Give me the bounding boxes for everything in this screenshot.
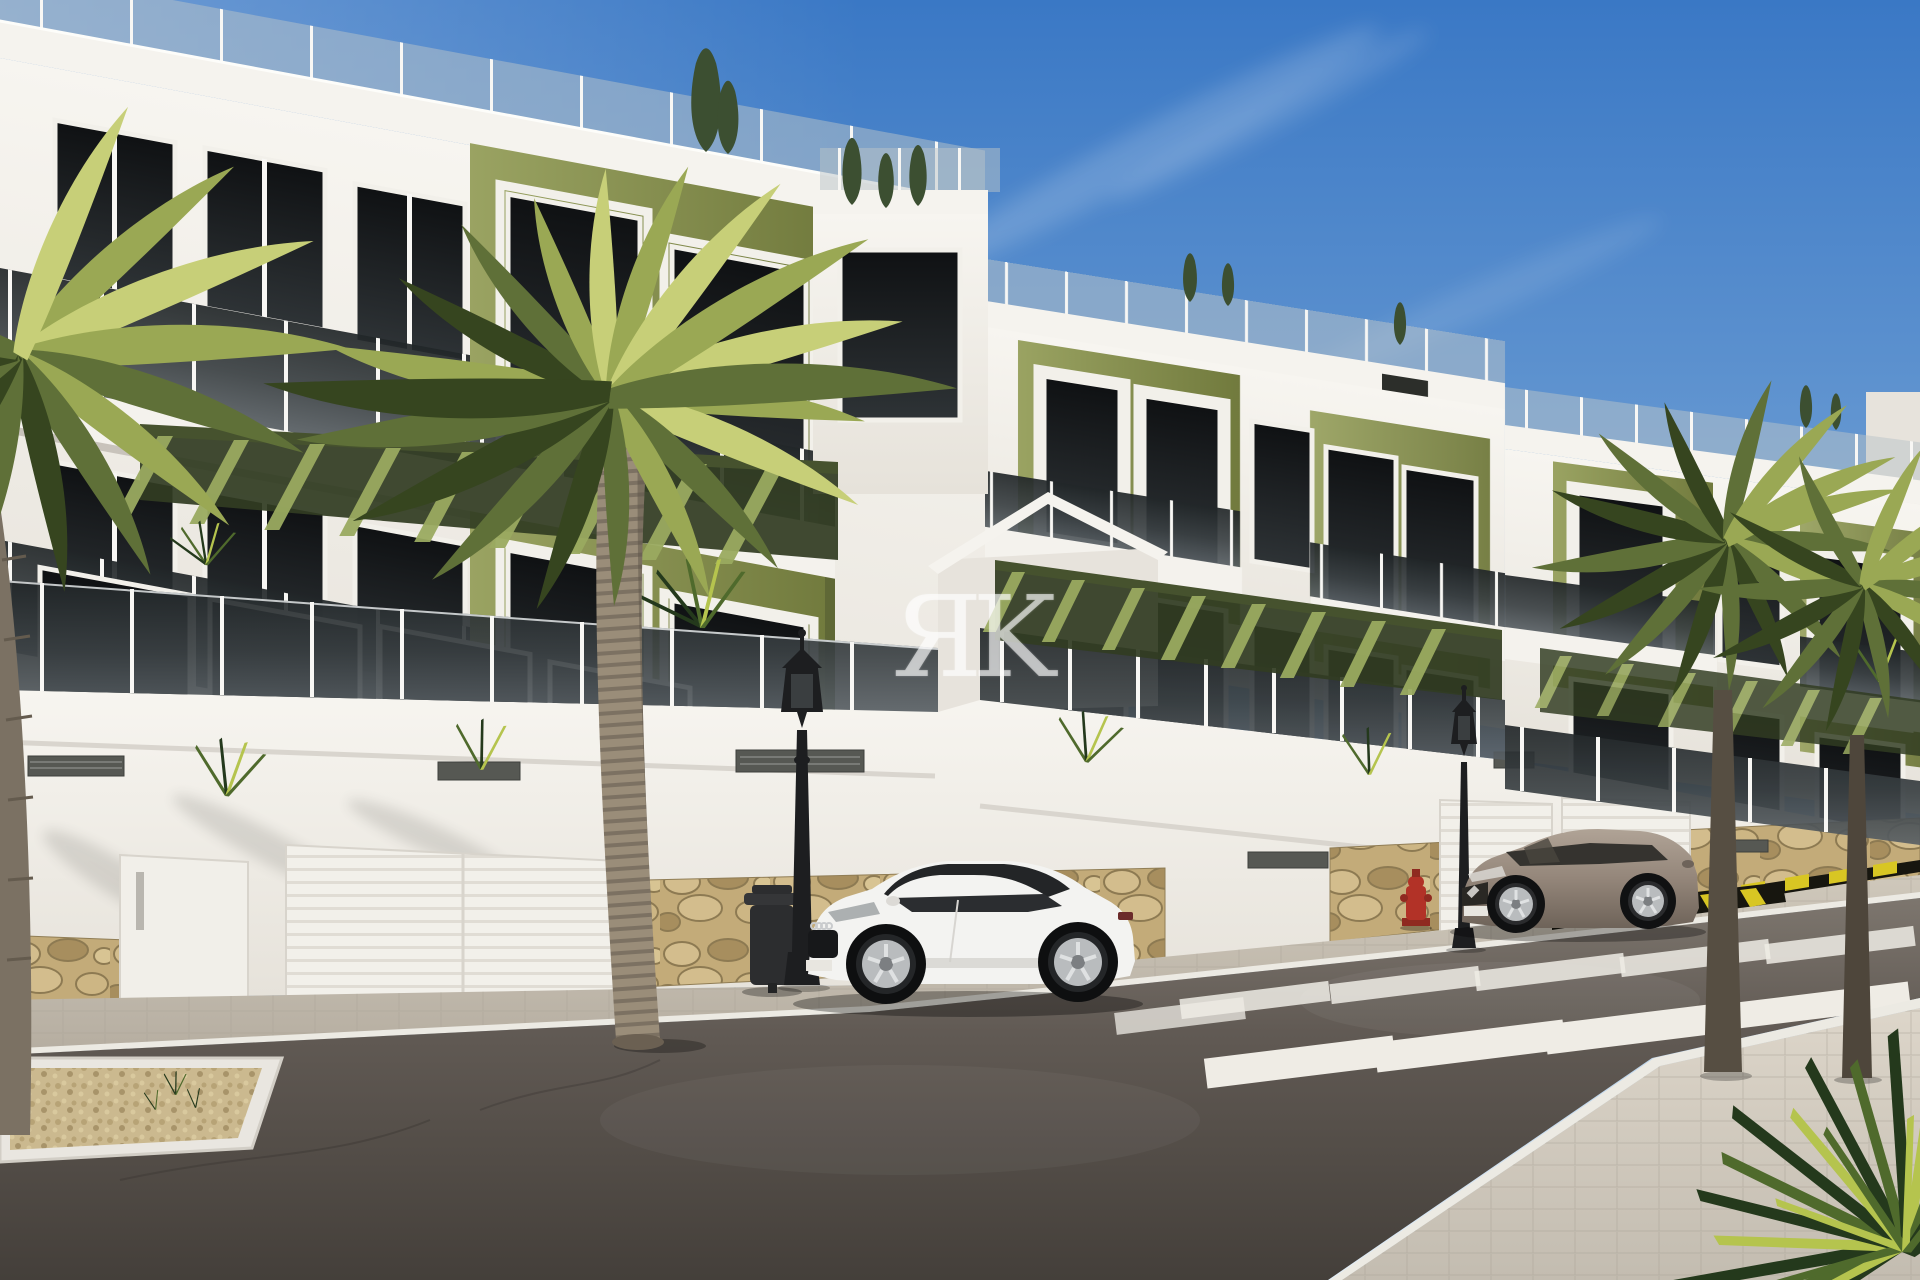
window xyxy=(1252,421,1312,571)
front-wheel xyxy=(1487,875,1545,933)
grille xyxy=(808,930,838,958)
license-plate xyxy=(1464,906,1488,916)
license-plate xyxy=(806,960,832,971)
door-handle xyxy=(136,872,144,930)
penthouse xyxy=(813,148,1000,494)
watermark-logo: ЯK xyxy=(892,582,1046,694)
cornice xyxy=(813,190,988,216)
front-wheel xyxy=(846,924,926,1004)
mirror xyxy=(886,896,900,906)
mirror xyxy=(1682,860,1694,868)
taillight xyxy=(1118,912,1133,920)
planter-bed xyxy=(0,1058,282,1162)
render-canvas: ЯK xyxy=(0,0,1920,1280)
rear-wheel xyxy=(1038,922,1118,1002)
trunk-base xyxy=(612,1034,664,1050)
lantern-glass xyxy=(791,674,813,708)
planter-gravel xyxy=(10,1068,262,1150)
lantern-glass xyxy=(1458,716,1470,740)
rear-wheel xyxy=(1620,873,1676,929)
